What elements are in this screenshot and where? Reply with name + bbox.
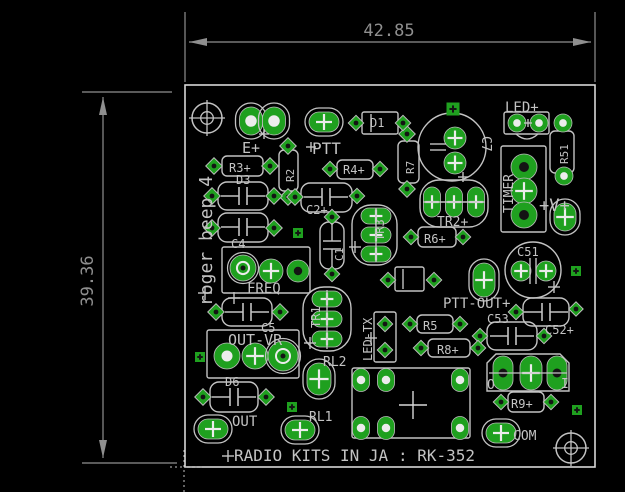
- d6-pad-2-hole: [264, 395, 269, 400]
- silk-rl1: RL1: [309, 410, 332, 425]
- silk-r51: R51: [558, 144, 571, 164]
- silk-out-vr: OUT-VR: [228, 331, 283, 349]
- silk-r6: R6+: [424, 232, 446, 246]
- freq-pad-3-hole: [294, 267, 302, 275]
- silk-r2: R2: [284, 169, 297, 182]
- r8-pad-1-hole: [419, 346, 424, 351]
- r51-pad-1-hole: [559, 119, 567, 127]
- r8-pad-2-hole: [476, 346, 481, 351]
- ledtx-pad-1-hole: [383, 322, 388, 327]
- dimension-width-label: 42.85: [344, 21, 434, 41]
- silk-d6: D6: [225, 375, 239, 389]
- c2-pad-1-hole: [293, 195, 298, 200]
- silk-r7: R7: [404, 161, 417, 174]
- silk-ptt: PTT: [312, 139, 341, 158]
- silk-r4: R4+: [343, 163, 365, 177]
- outvr-pad-1-hole: [221, 350, 232, 361]
- r6-pad-2-hole: [461, 235, 466, 240]
- r9-pad-2-hole: [549, 400, 554, 405]
- relay-pad-6-hole: [456, 424, 465, 433]
- pad-e-1-hole: [245, 115, 257, 127]
- silk-tr2: TR2+: [437, 215, 468, 230]
- silk-c52: C52+: [545, 323, 574, 337]
- dimension-height-label: 39.36: [78, 236, 98, 326]
- silk-r8: R8+: [437, 343, 459, 357]
- relay-pad-3-hole: [456, 376, 465, 385]
- relay-pad-4-hole: [357, 424, 366, 433]
- silk-c53: C53: [487, 312, 509, 326]
- silk-d1: D1: [370, 116, 384, 130]
- c2-pad-2-hole: [355, 194, 360, 199]
- d2-pad-1-hole: [386, 278, 391, 283]
- c5-pad-2-hole: [278, 310, 283, 315]
- led-pad-1-hole: [513, 119, 521, 127]
- silk-c2: C2+: [306, 203, 328, 217]
- pad-e-2-hole: [268, 115, 280, 127]
- relay-pad-1-hole: [357, 376, 366, 385]
- r3-pad-2-hole: [268, 164, 273, 169]
- dimension-arrowhead-2: [573, 38, 591, 46]
- d1-pad-1-hole: [354, 121, 359, 126]
- outvr-pad-3-hole-center: [281, 354, 286, 359]
- dimension-arrowhead-1: [189, 38, 207, 46]
- silk-led-tx: LED-TX: [361, 317, 375, 361]
- r4-pad-2-hole: [378, 167, 383, 172]
- r7-pad-2-hole: [405, 187, 410, 192]
- relay-pad-2-hole: [382, 376, 391, 385]
- dimension-arrowhead-3: [99, 97, 107, 115]
- d1-pad-2-hole: [401, 121, 406, 126]
- c1-pad-2-hole: [330, 272, 335, 277]
- dimension-arrowhead-4: [99, 440, 107, 458]
- d3-pad-2-hole: [272, 194, 277, 199]
- c52-pad-1-hole: [514, 310, 519, 315]
- r3-pad-1-hole: [212, 164, 217, 169]
- pcb-cad-view: roger beep 4E+PTTD1LED+C7TIMER+V+R51R3+R…: [0, 0, 625, 492]
- silk-model: : RK-352: [398, 446, 475, 465]
- silk-c4: C4: [231, 237, 245, 251]
- silk-ptt-out: PTT-OUT+: [443, 296, 510, 312]
- d6-pad-1-hole: [201, 395, 206, 400]
- ledtx-pad-2-hole: [383, 348, 388, 353]
- silk-com: COM: [513, 429, 537, 444]
- r2-pad-1-hole: [286, 144, 291, 149]
- silk-c51: C51: [517, 245, 539, 259]
- r5-pad-1-hole: [408, 322, 413, 327]
- d2-pad-2-hole: [432, 278, 437, 283]
- c4-pad-2-hole: [272, 226, 277, 231]
- freq-pad-1-hole-center: [241, 266, 246, 271]
- silk-reg-i: I: [561, 377, 569, 392]
- silk-rl2: RL2: [323, 355, 346, 370]
- silk-reg-o: O: [487, 378, 495, 393]
- r7-pad-1-hole: [405, 132, 410, 137]
- silk-c1: C1: [333, 248, 346, 261]
- c5-pad-1-hole: [214, 310, 219, 315]
- silk-r5: R5: [423, 319, 437, 333]
- silk-plus-v: +V+: [539, 196, 570, 216]
- c53-pad-1-hole: [478, 334, 483, 339]
- c52-pad-2-hole: [574, 307, 579, 312]
- r4-pad-1-hole: [328, 167, 333, 172]
- timer-pad-3-hole: [519, 210, 529, 220]
- silk-freq: FREQ: [247, 281, 281, 297]
- silk-timer: TIMER: [502, 174, 517, 213]
- r6-pad-1-hole: [409, 235, 414, 240]
- c1-pad-1-hole: [330, 215, 335, 220]
- timer-pad-1-hole: [519, 162, 529, 172]
- silk-roger-beep: roger beep 4: [196, 176, 217, 306]
- r5-pad-2-hole: [458, 322, 463, 327]
- silk-brand: RADIO KITS IN JA: [234, 446, 388, 465]
- relay-pad-5-hole: [382, 424, 391, 433]
- silk-led: LED+: [505, 100, 539, 116]
- led-pad-2-hole: [535, 119, 543, 127]
- silk-c7: C7: [478, 136, 493, 152]
- silk-d3: D3: [236, 173, 250, 187]
- silk-tr1: TR1: [309, 306, 323, 328]
- silk-r9: R9+: [511, 397, 533, 411]
- silk-tr3: TR3: [373, 219, 387, 241]
- silk-out: OUT: [232, 414, 258, 430]
- r51-pad-2-hole: [560, 172, 568, 180]
- r9-pad-1-hole: [499, 400, 504, 405]
- silk-e: E+: [242, 139, 260, 157]
